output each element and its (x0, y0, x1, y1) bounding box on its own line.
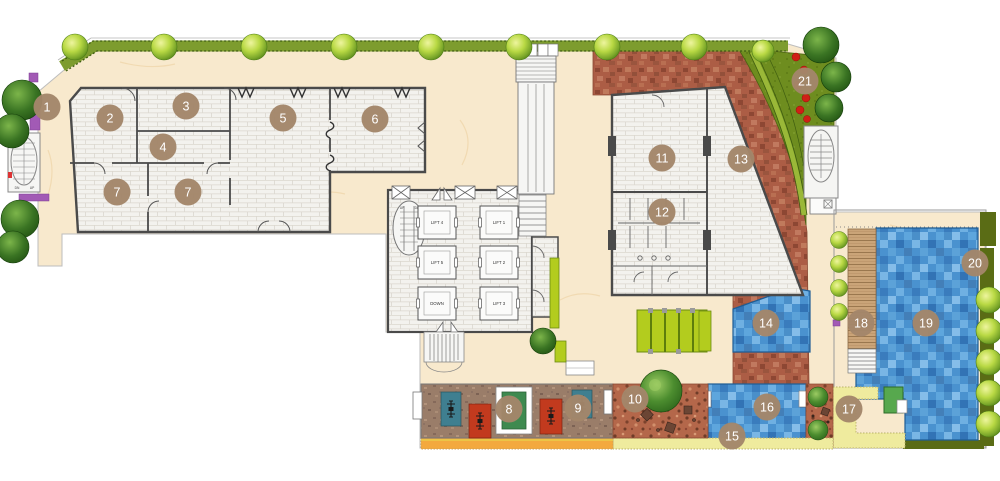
svg-text:7: 7 (114, 185, 121, 199)
marker-17[interactable]: 17 (836, 396, 863, 423)
svg-text:14: 14 (759, 316, 773, 330)
svg-text:18: 18 (854, 316, 868, 330)
gym-bench (413, 392, 422, 419)
marker-16[interactable]: 16 (754, 394, 781, 421)
svg-text:6: 6 (372, 112, 379, 126)
lift4-label: LIFT 4 (431, 220, 444, 225)
marker-7b[interactable]: 7 (175, 179, 202, 206)
svg-text:1: 1 (44, 100, 51, 114)
marker-21[interactable]: 21 (792, 68, 819, 95)
svg-text:5: 5 (280, 111, 287, 125)
marker-4[interactable]: 4 (150, 134, 177, 161)
marker-1[interactable]: 1 (34, 94, 61, 121)
marker-6[interactable]: 6 (362, 106, 389, 133)
svg-text:21: 21 (798, 74, 812, 88)
lobby-planter (550, 258, 559, 328)
floor-plan-canvas: UP DN LIFT 4 LIFT 5 DOWN LIFT 1 (0, 0, 1000, 481)
marker-20[interactable]: 20 (962, 250, 989, 277)
pool-ladder-notch (897, 400, 907, 413)
planter (699, 311, 711, 351)
marker-11[interactable]: 11 (649, 145, 676, 172)
svg-text:10: 10 (628, 392, 642, 406)
marker-19[interactable]: 19 (913, 310, 940, 337)
marker-10[interactable]: 10 (622, 386, 649, 413)
svg-text:19: 19 (919, 316, 933, 330)
marker-13[interactable]: 13 (728, 146, 755, 173)
marker-7a[interactable]: 7 (104, 179, 131, 206)
svg-text:12: 12 (655, 205, 669, 219)
svg-text:2: 2 (107, 111, 114, 125)
lift2-label: LIFT 2 (493, 260, 506, 265)
svg-text:9: 9 (575, 401, 582, 415)
marker-15[interactable]: 15 (719, 423, 746, 450)
lift3-label: LIFT 3 (493, 301, 506, 306)
green-louver-structure (637, 308, 707, 354)
entrance-stair (516, 44, 558, 194)
stair-down-label: DN (15, 186, 20, 190)
svg-text:17: 17 (842, 402, 856, 416)
svg-text:20: 20 (968, 256, 982, 270)
marker-2[interactable]: 2 (97, 105, 124, 132)
svg-text:15: 15 (725, 429, 739, 443)
core-side-stair (519, 189, 546, 236)
walking-track (421, 438, 833, 449)
stair-up-label: UP (400, 206, 405, 210)
planter (555, 341, 566, 362)
marker-12[interactable]: 12 (649, 199, 676, 226)
service-lift-label: DOWN (430, 301, 444, 306)
hydrant-mark (8, 172, 12, 178)
marker-3[interactable]: 3 (173, 93, 200, 120)
marker-18[interactable]: 18 (848, 310, 875, 337)
lift5-label: LIFT 5 (431, 260, 444, 265)
floor-plan: UP DN LIFT 4 LIFT 5 DOWN LIFT 1 (0, 0, 1000, 481)
marker-14[interactable]: 14 (753, 310, 780, 337)
svg-text:8: 8 (506, 402, 513, 416)
olive-strip-bottom (903, 440, 984, 449)
svg-text:4: 4 (160, 140, 167, 154)
svg-text:11: 11 (656, 151, 669, 165)
svg-text:3: 3 (183, 99, 190, 113)
svg-text:7: 7 (185, 185, 192, 199)
pool-steps (848, 349, 876, 373)
lift1-label: LIFT 1 (493, 220, 506, 225)
olive-strip-top (980, 212, 996, 246)
stair-up-label: UP (30, 186, 35, 190)
gym-bench (604, 390, 612, 414)
svg-text:16: 16 (760, 400, 774, 414)
marker-8[interactable]: 8 (496, 396, 523, 423)
marker-9[interactable]: 9 (565, 395, 592, 422)
svg-text:13: 13 (734, 152, 748, 166)
marker-5[interactable]: 5 (270, 105, 297, 132)
